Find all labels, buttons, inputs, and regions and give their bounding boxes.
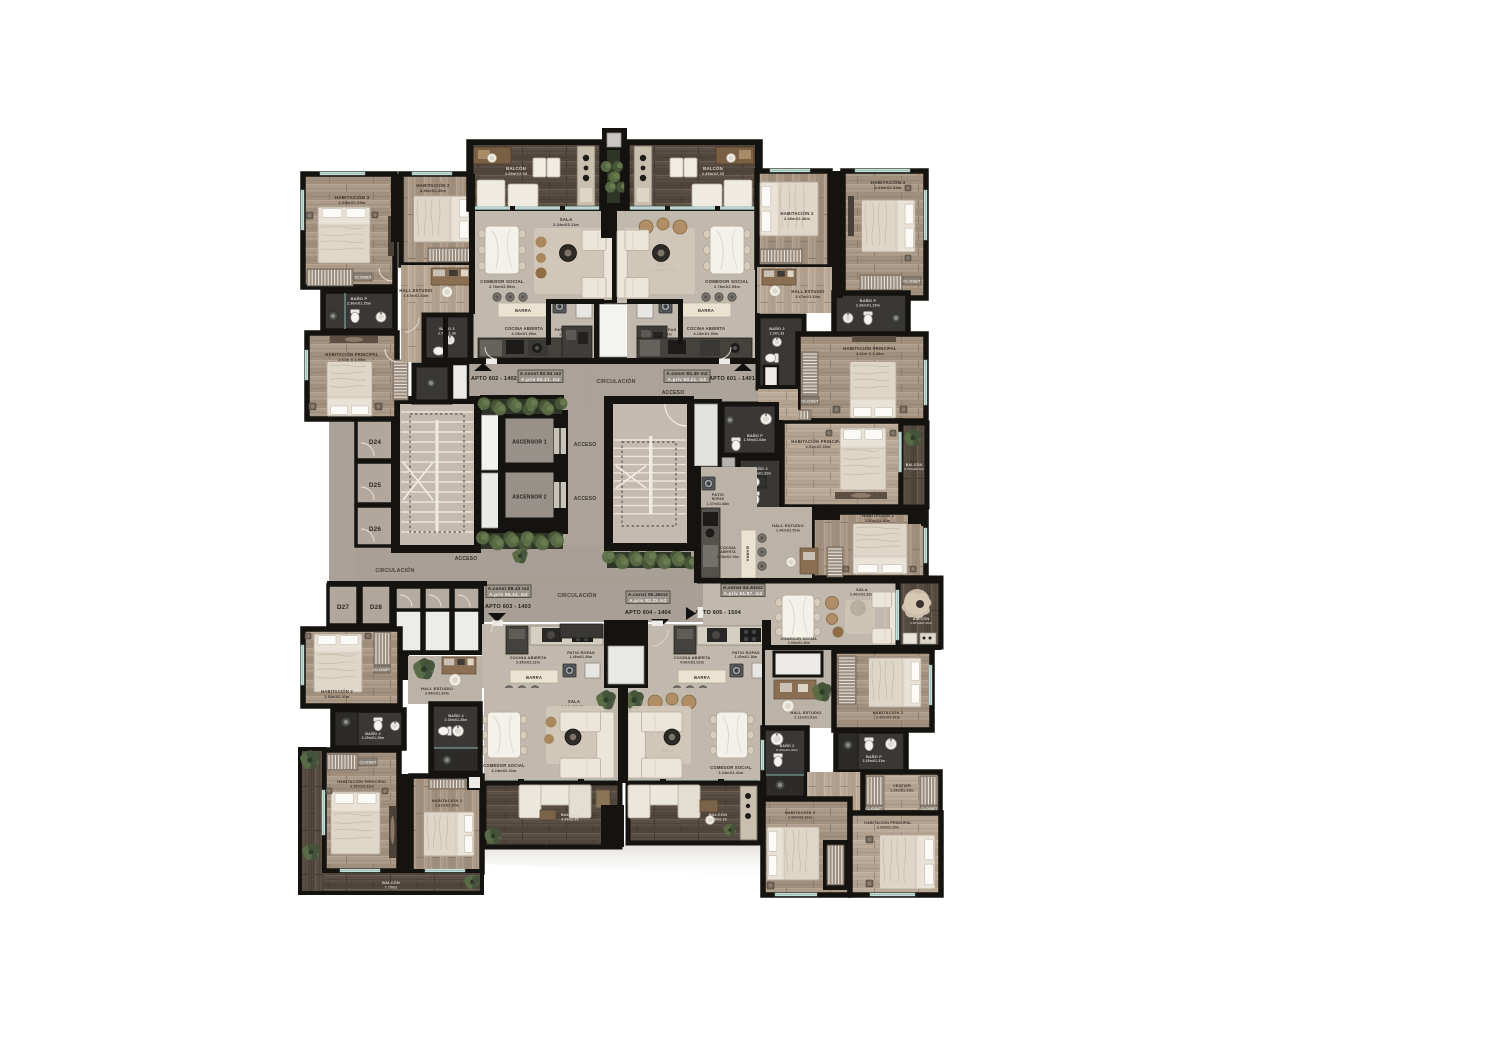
svg-text:2.67mX1.63m: 2.67mX1.63m (403, 294, 428, 298)
svg-text:7.75m2: 7.75m2 (385, 885, 398, 889)
svg-text:3.39mX2.20m: 3.39mX2.20m (877, 825, 899, 829)
svg-text:HABITACIÓN PRINCIPAL: HABITACIÓN PRINCIPAL (864, 820, 912, 825)
svg-text:ACCESO: ACCESO (662, 390, 685, 396)
svg-text:2.25mX1.29m: 2.25mX1.29m (362, 736, 385, 740)
svg-text:2.09mX3.16m: 2.09mX3.16m (788, 816, 812, 820)
svg-text:2.40mX2.83m: 2.40mX2.83m (850, 592, 874, 596)
svg-text:BAÑO P: BAÑO P (351, 296, 368, 301)
svg-text:BALCÓN: BALCÓN (703, 166, 723, 171)
svg-text:COMEDOR SOCIAL: COMEDOR SOCIAL (483, 763, 525, 768)
svg-text:HALL ESTUDIO: HALL ESTUDIO (791, 289, 825, 294)
svg-text:2.76mX2.55m: 2.76mX2.55m (714, 285, 741, 289)
svg-text:CLOSET: CLOSET (801, 399, 819, 404)
svg-text:PATIO ROPAS: PATIO ROPAS (648, 327, 677, 332)
svg-text:BALCÓN: BALCÓN (382, 880, 400, 885)
svg-text:APTO 601 - 1401: APTO 601 - 1401 (709, 376, 755, 382)
svg-text:CLOSET: CLOSET (903, 279, 921, 284)
svg-text:ACCESO: ACCESO (574, 496, 597, 502)
svg-text:APTO 603 - 1403: APTO 603 - 1403 (485, 604, 531, 610)
svg-text:APTO 602 - 1402: APTO 602 - 1402 (471, 376, 517, 382)
svg-text:HABITACIÓN 2: HABITACIÓN 2 (416, 183, 450, 188)
svg-text:3.24mX2.41m: 3.24mX2.41m (491, 769, 516, 773)
svg-text:COMEDOR SOCIAL: COMEDOR SOCIAL (710, 765, 752, 770)
svg-text:3.24mX2.41m: 3.24mX2.41m (718, 771, 743, 775)
svg-text:BALCÓN: BALCÓN (506, 166, 526, 171)
svg-text:HABITACIÓN PRINCIPAL: HABITACIÓN PRINCIPAL (791, 439, 845, 444)
svg-text:2.24mX3.11m: 2.24mX3.11m (553, 223, 579, 227)
svg-text:2.76mX2.55m: 2.76mX2.55m (489, 285, 516, 289)
svg-text:SALA: SALA (568, 699, 580, 704)
svg-text:2.11mX1.61m: 2.11mX1.61m (794, 715, 817, 719)
svg-text:2.30mX1.35m: 2.30mX1.35m (445, 718, 468, 722)
svg-text:A.const 83.40 m2: A.const 83.40 m2 (666, 371, 708, 376)
svg-text:ACCESO: ACCESO (574, 442, 597, 448)
svg-text:1.37mX1.48m: 1.37mX1.48m (707, 502, 729, 506)
svg-text:4.46mX2.33: 4.46mX2.33 (505, 172, 528, 176)
svg-text:A.const 88.43 m2: A.const 88.43 m2 (488, 586, 530, 591)
svg-text:A.const 85.26m2: A.const 85.26m2 (628, 592, 668, 597)
svg-text:ABIERTA: ABIERTA (720, 550, 736, 554)
svg-text:CLOSET: CLOSET (354, 275, 372, 280)
svg-text:COCINA ABIERTA: COCINA ABIERTA (674, 655, 711, 660)
svg-text:3.36mX2.40m: 3.36mX2.40m (420, 189, 447, 193)
svg-text:2.36mX1.25m: 2.36mX1.25m (856, 304, 880, 308)
svg-text:BAÑO P: BAÑO P (860, 298, 877, 303)
svg-text:HALL ESTUDIO: HALL ESTUDIO (421, 686, 453, 691)
svg-text:HALL ESTUDIO: HALL ESTUDIO (772, 523, 804, 528)
svg-text:SALA: SALA (856, 587, 868, 592)
svg-text:CIRCULACIÓN: CIRCULACIÓN (596, 377, 635, 385)
svg-text:4.88X2.15: 4.88X2.15 (709, 818, 726, 822)
svg-text:APTO 604 - 1404: APTO 604 - 1404 (625, 610, 672, 616)
svg-text:D28: D28 (370, 604, 383, 611)
svg-text:2.35mX2.40m: 2.35mX2.40m (788, 641, 810, 645)
svg-text:BARRA: BARRA (526, 675, 542, 680)
svg-text:A.const 64.63m2: A.const 64.63m2 (723, 585, 763, 590)
svg-text:HABITACIÓN 2: HABITACIÓN 2 (780, 211, 814, 216)
svg-text:BALCÓN: BALCÓN (561, 812, 579, 817)
svg-text:4.09mX2.09m: 4.09mX2.09m (874, 185, 901, 190)
svg-text:3.35mX3.32m: 3.35mX3.32m (350, 785, 373, 789)
svg-text:2.64mX2.41m: 2.64mX2.41m (324, 695, 349, 699)
svg-text:2.42mX3.56m: 2.42mX3.56m (876, 716, 900, 720)
svg-text:1.4mX1.4m: 1.4mX1.4m (652, 333, 672, 337)
svg-text:A.priv 61.87. m2: A.priv 61.87. m2 (724, 591, 763, 596)
svg-text:SALA: SALA (560, 217, 573, 222)
svg-text:1.29mX2.43m: 1.29mX2.43m (890, 788, 913, 792)
svg-text:COCINA ABIERTA: COCINA ABIERTA (505, 326, 543, 331)
svg-text:4.88X2.85: 4.88X2.85 (561, 818, 578, 822)
svg-text:1.95mX1.63m: 1.95mX1.63m (744, 438, 767, 442)
svg-text:A.priv 80.21. m2: A.priv 80.21. m2 (668, 377, 707, 382)
svg-text:2.61mX2.35m: 2.61mX2.35m (435, 804, 459, 808)
svg-text:CLOSET: CLOSET (373, 667, 391, 672)
svg-text:HABITACIÓN 3: HABITACIÓN 3 (335, 193, 370, 200)
svg-text:VESTIER: VESTIER (893, 783, 911, 788)
svg-text:ASCENSOR 2: ASCENSOR 2 (512, 495, 547, 501)
svg-text:COCINA ABIERTA: COCINA ABIERTA (510, 655, 547, 660)
svg-text:HABITACIÓN PRINCIPAL: HABITACIÓN PRINCIPAL (843, 346, 897, 351)
svg-text:ASCENSOR 1: ASCENSOR 1 (512, 440, 547, 446)
svg-text:BARRA: BARRA (698, 308, 714, 313)
svg-text:COCINA ABIERTA: COCINA ABIERTA (687, 326, 725, 331)
svg-text:HABITACIÓN PRINCIPAL: HABITACIÓN PRINCIPAL (337, 779, 387, 784)
svg-text:HABITACIÓN 3: HABITACIÓN 3 (785, 810, 816, 815)
svg-text:HABITACIÓN 2: HABITACIÓN 2 (321, 689, 353, 694)
svg-text:COMEDOR SOCIAL: COMEDOR SOCIAL (705, 279, 749, 284)
svg-text:ROPAS: ROPAS (712, 497, 725, 501)
svg-text:1.40mX2.50m: 1.40mX2.50m (776, 529, 800, 533)
svg-text:ACCESO: ACCESO (455, 556, 478, 562)
svg-text:HABITACIÓN 3: HABITACIÓN 3 (871, 178, 906, 185)
svg-text:BALCÓN: BALCÓN (709, 812, 727, 817)
svg-text:2.3X1.33: 2.3X1.33 (770, 331, 785, 335)
svg-text:2.36mX1.25m: 2.36mX1.25m (347, 302, 371, 306)
svg-text:4.06mX2.02m: 4.06mX2.02m (680, 661, 704, 665)
svg-text:CIRCULACIÓN: CIRCULACIÓN (557, 591, 596, 599)
svg-text:3.54mX1.64m: 3.54mX1.64m (425, 691, 449, 695)
svg-text:HABITACIÓN 2: HABITACIÓN 2 (862, 513, 894, 518)
svg-text:A.const 82.94 m2: A.const 82.94 m2 (520, 371, 562, 376)
svg-text:4.09mX2.09m: 4.09mX2.09m (338, 200, 365, 205)
svg-text:HABITACIÓN 2: HABITACIÓN 2 (432, 798, 463, 803)
svg-text:2.67m X 2.90m: 2.67m X 2.90m (338, 358, 365, 362)
svg-text:1.67mX2.40m: 1.67mX2.40m (910, 621, 932, 625)
svg-text:HABITACIÓN PRINCIPAL: HABITACIÓN PRINCIPAL (325, 352, 379, 357)
svg-text:1.40mX1.16m: 1.40mX1.16m (735, 655, 758, 659)
svg-text:2.25mX1.31m: 2.25mX1.31m (863, 759, 886, 763)
svg-text:HALL ESTUDIO: HALL ESTUDIO (399, 288, 433, 293)
svg-text:HALL ESTUDIO: HALL ESTUDIO (790, 710, 821, 715)
svg-text:CIRCULACIÓN: CIRCULACIÓN (375, 566, 414, 574)
svg-text:A.priv 82.25 m2: A.priv 82.25 m2 (629, 598, 667, 603)
svg-text:3.35mX2.22m: 3.35mX2.22m (516, 661, 540, 665)
svg-text:3.81m X 3.40m: 3.81m X 3.40m (856, 352, 883, 356)
svg-text:BAÑO 2: BAÑO 2 (769, 326, 785, 331)
svg-text:D26: D26 (369, 526, 382, 533)
svg-text:2.51mX2.61m: 2.51mX2.61m (865, 519, 890, 523)
svg-text:3.36mX2.40m: 3.36mX2.40m (784, 217, 811, 221)
svg-text:4.46mX2.33: 4.46mX2.33 (702, 172, 725, 176)
svg-text:A.priv 85.44. m2: A.priv 85.44. m2 (489, 592, 528, 597)
svg-text:D25: D25 (369, 482, 382, 489)
svg-text:A.priv 80.21. m2: A.priv 80.21. m2 (521, 377, 560, 382)
svg-text:HABITACIÓN 2: HABITACIÓN 2 (873, 710, 904, 715)
svg-text:1.46mX1.40m: 1.46mX1.40m (570, 655, 593, 659)
svg-text:COMEDOR SOCIAL: COMEDOR SOCIAL (480, 279, 524, 284)
svg-text:3.05mX2.19m: 3.05mX2.19m (717, 555, 739, 559)
svg-text:D27: D27 (337, 604, 350, 611)
svg-text:4.15mX1.93m: 4.15mX1.93m (693, 332, 718, 336)
svg-text:4.15mX1.93m: 4.15mX1.93m (511, 332, 536, 336)
svg-text:2.30mX1.30m: 2.30mX1.30m (776, 748, 798, 752)
svg-text:BARRA: BARRA (746, 546, 751, 561)
svg-text:CLOSET: CLOSET (359, 760, 377, 765)
svg-text:4.01mX2.60m: 4.01mX2.60m (805, 445, 830, 449)
svg-text:D24: D24 (369, 439, 382, 446)
svg-text:2.70mX0.9m: 2.70mX0.9m (904, 467, 924, 471)
svg-text:2.67mX1.63m: 2.67mX1.63m (795, 295, 820, 299)
svg-text:BARRA: BARRA (694, 675, 710, 680)
svg-text:BARRA: BARRA (515, 308, 531, 313)
